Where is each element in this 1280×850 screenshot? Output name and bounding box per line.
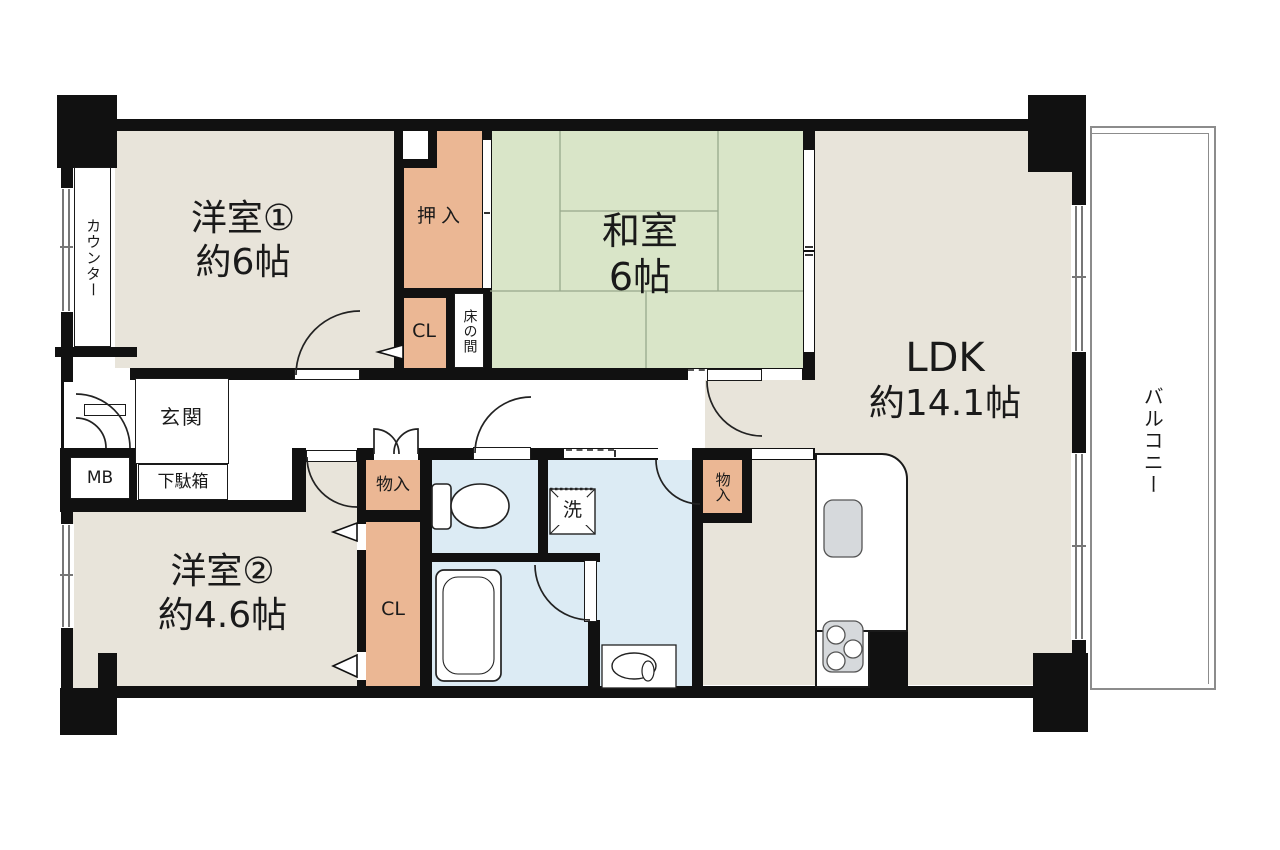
room-name: LDK: [905, 334, 984, 383]
room-name: 洋室②: [170, 550, 274, 594]
monoire-hall-label: 物入: [366, 460, 420, 510]
swing-arrow: [333, 655, 357, 677]
door-arc-bathroom: [535, 565, 590, 620]
door-arc-toilet: [475, 397, 531, 453]
mb-label: MB: [70, 457, 130, 499]
counter-label: カウンター: [76, 172, 110, 344]
room-size: 約14.1帖: [869, 382, 1021, 426]
room-size: 6帖: [609, 254, 671, 300]
monoire-kitchen-label: 物入: [703, 460, 742, 513]
room-yoshitsu2-label: 洋室② 約4.6帖: [95, 548, 350, 640]
washbasin-icon: [602, 645, 676, 688]
door-arc-yoshitsu2: [307, 457, 357, 507]
cl-lower-label: CL: [366, 590, 420, 630]
room-name: 洋室①: [191, 197, 295, 241]
tokonoma-label: 床の間: [454, 296, 484, 366]
door-arc-entrance-inner: [76, 418, 106, 448]
genkan-label: 玄関: [135, 402, 229, 432]
balcony-label: バルコニー: [1130, 356, 1174, 526]
cl-upper-label: CL: [400, 296, 448, 368]
monoire-door-right: [394, 429, 418, 454]
stove-icon: [823, 621, 863, 672]
room-washitsu-label: 和室 6帖: [540, 206, 740, 302]
monoire-door-left: [374, 429, 399, 454]
oshiire-label: 押入: [400, 202, 482, 232]
washing-machine-label: 洗: [558, 497, 587, 525]
door-arc-entrance-outer: [76, 394, 130, 448]
door-arc-yoshitsu1: [296, 311, 360, 375]
door-arc-washroom: [656, 460, 700, 504]
room-yoshitsu1-label: 洋室① 約6帖: [118, 196, 368, 286]
getabako-label: 下駄箱: [138, 464, 228, 500]
room-name: 和室: [602, 208, 678, 254]
bathtub-icon: [436, 570, 501, 681]
toilet-icon: [432, 484, 509, 529]
door-arc-ldk: [707, 381, 762, 436]
floor-plan: 洋室① 約6帖 和室 6帖 LDK 約14.1帖 洋室② 約4.6帖 押入 CL…: [0, 0, 1280, 850]
room-size: 約6帖: [196, 241, 291, 285]
room-size: 約4.6帖: [158, 594, 287, 638]
room-ldk-label: LDK 約14.1帖: [845, 332, 1045, 428]
swing-arrow: [333, 523, 357, 541]
sink-icon: [824, 500, 862, 557]
